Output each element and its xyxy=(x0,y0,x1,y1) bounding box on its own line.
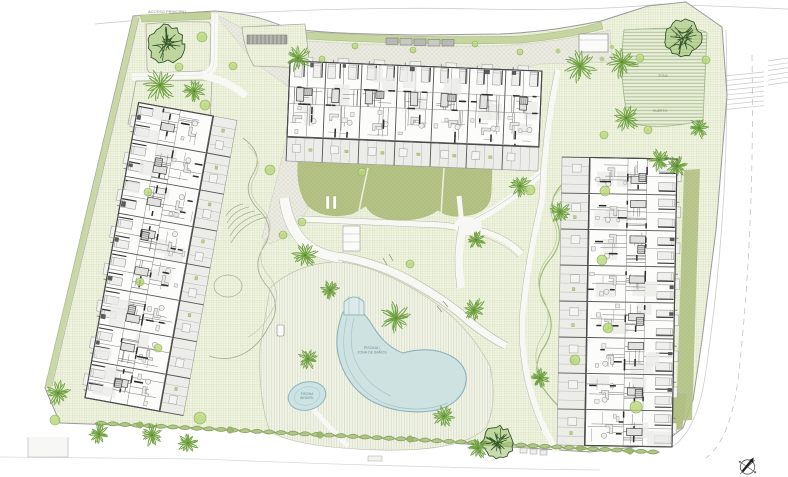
svg-text:PISCINA /: PISCINA / xyxy=(364,346,380,350)
svg-text:ZONA DE BAÑOS: ZONA DE BAÑOS xyxy=(357,350,387,355)
svg-text:INFANTIL: INFANTIL xyxy=(300,396,314,400)
svg-text:HUERTO: HUERTO xyxy=(653,109,668,113)
svg-text:ZONA: ZONA xyxy=(658,74,668,78)
svg-text:ACCESO PRINCIPAL: ACCESO PRINCIPAL xyxy=(148,9,188,14)
